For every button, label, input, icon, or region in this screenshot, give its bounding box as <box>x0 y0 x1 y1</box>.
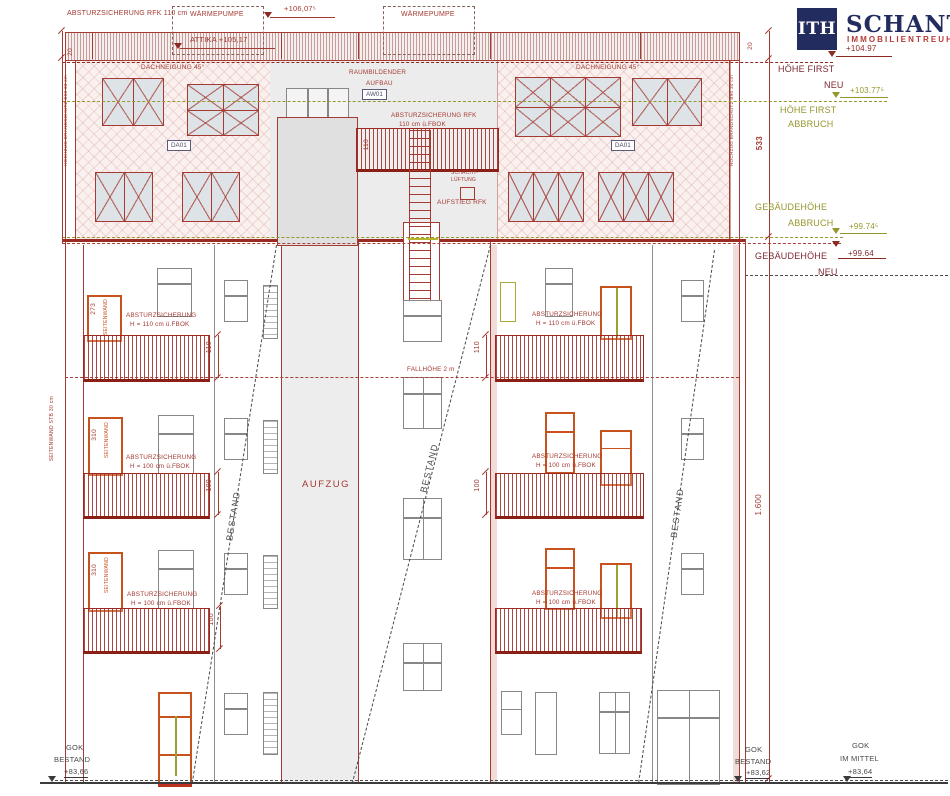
skylight-pane <box>516 108 550 137</box>
waermepumpe-label-2: WÄRMEPUMPE <box>401 11 455 19</box>
logo-mark: ITH <box>797 8 837 50</box>
absturz-l2-line1: ABSTURZSICHERUNG <box>126 454 196 461</box>
window-mullion <box>225 433 247 435</box>
roof-ladder <box>409 130 431 312</box>
stair-window <box>681 280 704 322</box>
skylight-pane <box>586 78 620 107</box>
dim-tick <box>216 645 223 652</box>
window-mullion <box>404 315 441 317</box>
window-mullion <box>547 431 573 433</box>
dachneigung-left: DACHNEIGUNG 45° <box>141 64 204 71</box>
dim-line <box>486 335 487 378</box>
seitenwand-label: SEITENWAND <box>105 557 110 593</box>
bestand-label-right: BESTAND <box>669 487 686 538</box>
elevation-marker <box>832 241 840 247</box>
aufzug-edge-right <box>358 240 359 783</box>
da01-tag-left: DA01 <box>167 140 191 151</box>
drawing-sheet: WÄRMEPUMPE WÄRMEPUMPE ABSTURZSICHERUNG R… <box>0 0 950 796</box>
seitenwand-panel-3: 310 SEITENWAND <box>88 552 123 612</box>
attika-joint <box>92 32 93 59</box>
aw01-tag: AW01 <box>362 89 387 100</box>
hoehe-first-abbruch-2: ABBRUCH <box>788 119 833 129</box>
window <box>403 377 442 429</box>
window <box>403 643 442 691</box>
attika-joint <box>640 32 641 59</box>
skylight-group <box>508 172 584 222</box>
absturz-r1-line2: H = 110 cm ü.FBOK <box>536 320 595 327</box>
logo-name: SCHANTL <box>846 13 950 36</box>
schacht-line1: SCHACHT- <box>451 171 478 177</box>
hoehe-first-neu-1: HÖHE FIRST <box>778 64 835 74</box>
highlight-window-orange <box>600 286 632 340</box>
seitenwand-panel-2: 310 SEITENWAND <box>88 417 123 476</box>
elevation-marker <box>832 92 840 98</box>
wall-line-grey <box>652 245 653 783</box>
absturz-r3-line2: H = 100 cm ü.FBOK <box>536 599 596 606</box>
gebaeudehoehe-abbruch-1: GEBÄUDEHÖHE <box>755 202 827 212</box>
skylight-pane <box>516 78 550 107</box>
window <box>501 691 522 735</box>
skylight-pane <box>212 173 240 221</box>
balcony-railing <box>495 335 644 382</box>
roof-strip-line-left <box>75 60 76 240</box>
dim-line <box>486 472 487 515</box>
skylight-pane <box>599 173 623 221</box>
window-mullion <box>159 568 193 570</box>
skylight-group <box>102 78 164 126</box>
gok-left-2: BESTAND <box>54 756 90 765</box>
ground-dashline <box>55 780 948 781</box>
elevation-marker <box>734 776 742 782</box>
window-mullion <box>682 568 703 570</box>
skylight-group <box>515 77 621 137</box>
gebaeudehoehe-neu-2: NEU <box>818 267 838 277</box>
skylight-pane <box>224 111 259 136</box>
window <box>535 692 557 755</box>
window <box>157 268 192 317</box>
skylight-group <box>598 172 674 222</box>
absturz-l2-line2: H = 100 cm ü.FBOK <box>130 463 190 470</box>
skylight-pane <box>509 173 533 221</box>
absturz-l1-line1: ABSTURZSICHERUNG <box>126 312 196 319</box>
dim-100-right: 100 <box>474 479 481 492</box>
gebaeudehoehe-abbruch-2: ABBRUCH <box>788 218 833 228</box>
window-mullion <box>225 708 247 710</box>
gok-right-1: GOK <box>745 746 762 755</box>
door-mullion <box>175 716 177 776</box>
structure-mullion <box>327 89 329 118</box>
hoehe-first-neu-2: NEU <box>824 80 844 90</box>
seitenwand-label: SEITENWAND <box>104 299 109 335</box>
window <box>599 692 630 754</box>
edge-offset-line <box>745 240 746 783</box>
skylight-pane <box>534 173 558 221</box>
level-99-74-label: +99.74⁵ <box>849 222 878 231</box>
dim-273: 273 <box>91 303 98 315</box>
hoehe-first-abbruch-1: HÖHE FIRST <box>780 105 837 115</box>
dim-100-left: 100 <box>206 479 213 492</box>
skylight-pane <box>633 79 667 125</box>
margin-dim-line-right <box>769 31 770 782</box>
skylight-group <box>632 78 702 126</box>
first-abbruch-dashline <box>62 101 887 102</box>
attika-joint <box>358 32 359 59</box>
level-106-line <box>270 17 335 18</box>
attika-joint <box>281 32 282 59</box>
roof-dim-110: 110 <box>364 139 371 150</box>
dim-100-left-3: 100 <box>208 613 215 626</box>
skylight-pane <box>188 85 223 110</box>
bestand-label-center: BESTAND <box>418 442 440 493</box>
stair-window <box>681 553 704 595</box>
window-mullion <box>616 288 618 338</box>
absturz-r2-line1: ABSTURZSICHERUNG <box>532 453 602 460</box>
gok-right-2: BESTAND <box>735 758 771 767</box>
dim-1600: 1.600 <box>755 494 763 516</box>
attika-joint <box>490 32 491 59</box>
skylight-pane <box>624 173 648 221</box>
margin-dim-line-left <box>62 31 63 243</box>
aufstieg-label: AUFSTIEG RFK <box>437 199 487 206</box>
gebaeudehoehe-neu-1: GEBÄUDEHÖHE <box>755 251 827 261</box>
fallhoehe-label: FALLHÖHE 2 m <box>407 366 455 373</box>
entrance-door <box>657 690 720 785</box>
window <box>403 300 442 342</box>
wall-line-grey <box>214 245 215 783</box>
skylight-pane <box>188 111 223 136</box>
attika-level-label: ATTIKA +105,17 <box>190 36 248 45</box>
hochzug-left: HOCHZUG BRANDSCHUTZ B90 30 cm <box>64 75 69 166</box>
gebaeudehoehe-neu-dashline <box>62 243 841 244</box>
window <box>545 268 573 317</box>
da01-tag-right: DA01 <box>611 140 635 151</box>
absturz-r1-line1: ABSTURZSICHERUNG <box>532 311 602 318</box>
window-mullion <box>159 433 193 435</box>
skylight-pane <box>103 79 133 125</box>
gok-right-level: +83,62 <box>746 769 770 779</box>
highlight-door-orange <box>158 692 192 787</box>
logo-subtitle: IMMOBILIENTREUHAND <box>847 36 950 44</box>
dachneigung-right: DACHNEIGUNG 45° <box>576 64 639 71</box>
window-mullion <box>502 709 521 711</box>
dim-110-left: 110 <box>206 341 213 353</box>
skylight-pane <box>551 78 585 107</box>
rooftop-structure <box>286 88 349 119</box>
skylight-group <box>95 172 153 222</box>
elevator-overrun <box>277 117 358 246</box>
window-mullion <box>682 295 703 297</box>
neu-level-dashline-right <box>745 275 948 276</box>
gok-left-level: +83,66 <box>64 768 88 778</box>
stair-window <box>224 418 248 460</box>
stair-window <box>224 280 248 322</box>
skylight-pane <box>586 108 620 137</box>
skylight-group <box>182 172 240 222</box>
elevation-marker-attika <box>174 43 182 49</box>
absturz-l1-line2: H = 110 cm ü.FBOK <box>130 321 189 328</box>
level-103-label: +103.77⁵ <box>850 86 884 95</box>
wall-poche <box>733 245 739 783</box>
skylight-pane <box>96 173 124 221</box>
balcony-railing <box>83 473 210 519</box>
roof-absturz-line1: ABSTURZSICHERUNG RFK <box>391 112 477 119</box>
highlight-window-yellow <box>500 282 516 322</box>
dim-20-left: 20 <box>68 48 75 56</box>
gok-mittel-1: GOK <box>852 742 869 751</box>
window-mullion <box>158 283 191 285</box>
louver-window <box>263 420 278 474</box>
aufzug-column-fill <box>282 240 358 783</box>
louver-window <box>263 555 278 609</box>
absturz-l3-line1: ABSTURZSICHERUNG <box>127 591 197 598</box>
elevation-marker <box>832 228 840 234</box>
attika-level-line <box>180 48 275 49</box>
window-mullion <box>225 568 247 570</box>
dim-line <box>218 335 219 378</box>
roof-absturz-line2: 110 cm ü.FBOK <box>399 121 446 128</box>
elevation-marker-106 <box>264 12 272 18</box>
absturz-l3-line2: H = 100 cm ü.FBOK <box>131 600 191 607</box>
absturz-r3-line1: ABSTURZSICHERUNG <box>532 590 602 597</box>
balcony-railing <box>83 335 210 382</box>
skylight-pane <box>125 173 153 221</box>
elevation-marker <box>843 776 851 782</box>
seitenwand-stb-label: SEITENWAND STB 30 cm <box>50 396 55 461</box>
window-mullion <box>423 378 425 428</box>
level-99-74-line <box>840 233 887 234</box>
gebaeudehoehe-abbruch-dashline <box>62 237 843 238</box>
gok-left-1: GOK <box>66 744 83 753</box>
schacht-line2: LÜFTUNG <box>451 178 476 184</box>
dim-310: 310 <box>92 564 99 576</box>
building-edge-right <box>739 32 740 783</box>
structure-mullion <box>307 89 309 118</box>
hochzug-right: HOCHZUG BRANDSCHUTZ B90 30 cm <box>730 75 735 166</box>
skylight-pane <box>559 173 583 221</box>
dim-line <box>220 606 221 649</box>
logo: ITH SCHANTL IMMOBILIENTREUHAND <box>790 6 945 54</box>
fallhoehe-dashline <box>65 377 739 378</box>
louver-window <box>263 692 278 755</box>
raumbildender-line2: AUFBAU <box>366 80 393 87</box>
absturz-rfk-top-label: ABSTURZSICHERUNG RFK 110 cm <box>67 10 187 18</box>
dim-110-right: 110 <box>474 341 481 353</box>
bestand-label-left: BESTAND <box>224 490 242 541</box>
raumbildender-line1: RAUMBILDENDER <box>349 69 406 76</box>
dim-tick <box>482 511 489 518</box>
elevation-marker <box>48 776 56 782</box>
skylight-pane <box>668 79 702 125</box>
stair-window <box>224 693 248 735</box>
skylight-pane <box>134 79 164 125</box>
gok-mittel-2: IM MITTEL <box>840 755 879 764</box>
waermepumpe-label-1: WÄRMEPUMPE <box>190 11 244 19</box>
window-mullion <box>602 448 630 450</box>
door-mullion <box>689 691 691 784</box>
skylight-pane <box>649 173 673 221</box>
dim-310: 310 <box>92 429 99 441</box>
window-mullion <box>423 644 425 690</box>
skylight-pane <box>551 108 585 137</box>
dim-20-right: 20 <box>748 42 755 50</box>
window-mullion <box>615 693 617 753</box>
window-mullion <box>225 295 247 297</box>
skylight-pane <box>183 173 211 221</box>
window-mullion <box>682 433 703 435</box>
ground-line <box>40 782 948 784</box>
seitenwand-label: SEITENWAND <box>105 422 110 458</box>
skylight-group <box>187 84 259 136</box>
balcony-railing <box>83 608 210 654</box>
level-103-line <box>840 97 888 98</box>
dim-533: 533 <box>756 136 764 150</box>
skylight-pane <box>224 85 259 110</box>
aufzug-edge-left <box>281 240 282 783</box>
balcony-railing <box>495 608 642 654</box>
absturz-r2-line2: H = 100 cm ü.FBOK <box>536 462 596 469</box>
balcony-railing <box>495 473 644 519</box>
dim-line <box>218 472 219 515</box>
level-99-64-label: +99.64 <box>848 249 874 258</box>
level-104-line <box>836 56 892 57</box>
level-106-label: +106,07⁵ <box>284 5 316 14</box>
aufzug-label: AUFZUG <box>302 480 350 491</box>
level-99-64-line <box>838 258 886 259</box>
window-mullion <box>547 567 573 569</box>
window-mullion <box>546 283 572 285</box>
gok-mittel-level: +83,64 <box>848 768 872 778</box>
highlight-segment <box>408 238 438 240</box>
first-neu-dashline <box>62 62 833 63</box>
